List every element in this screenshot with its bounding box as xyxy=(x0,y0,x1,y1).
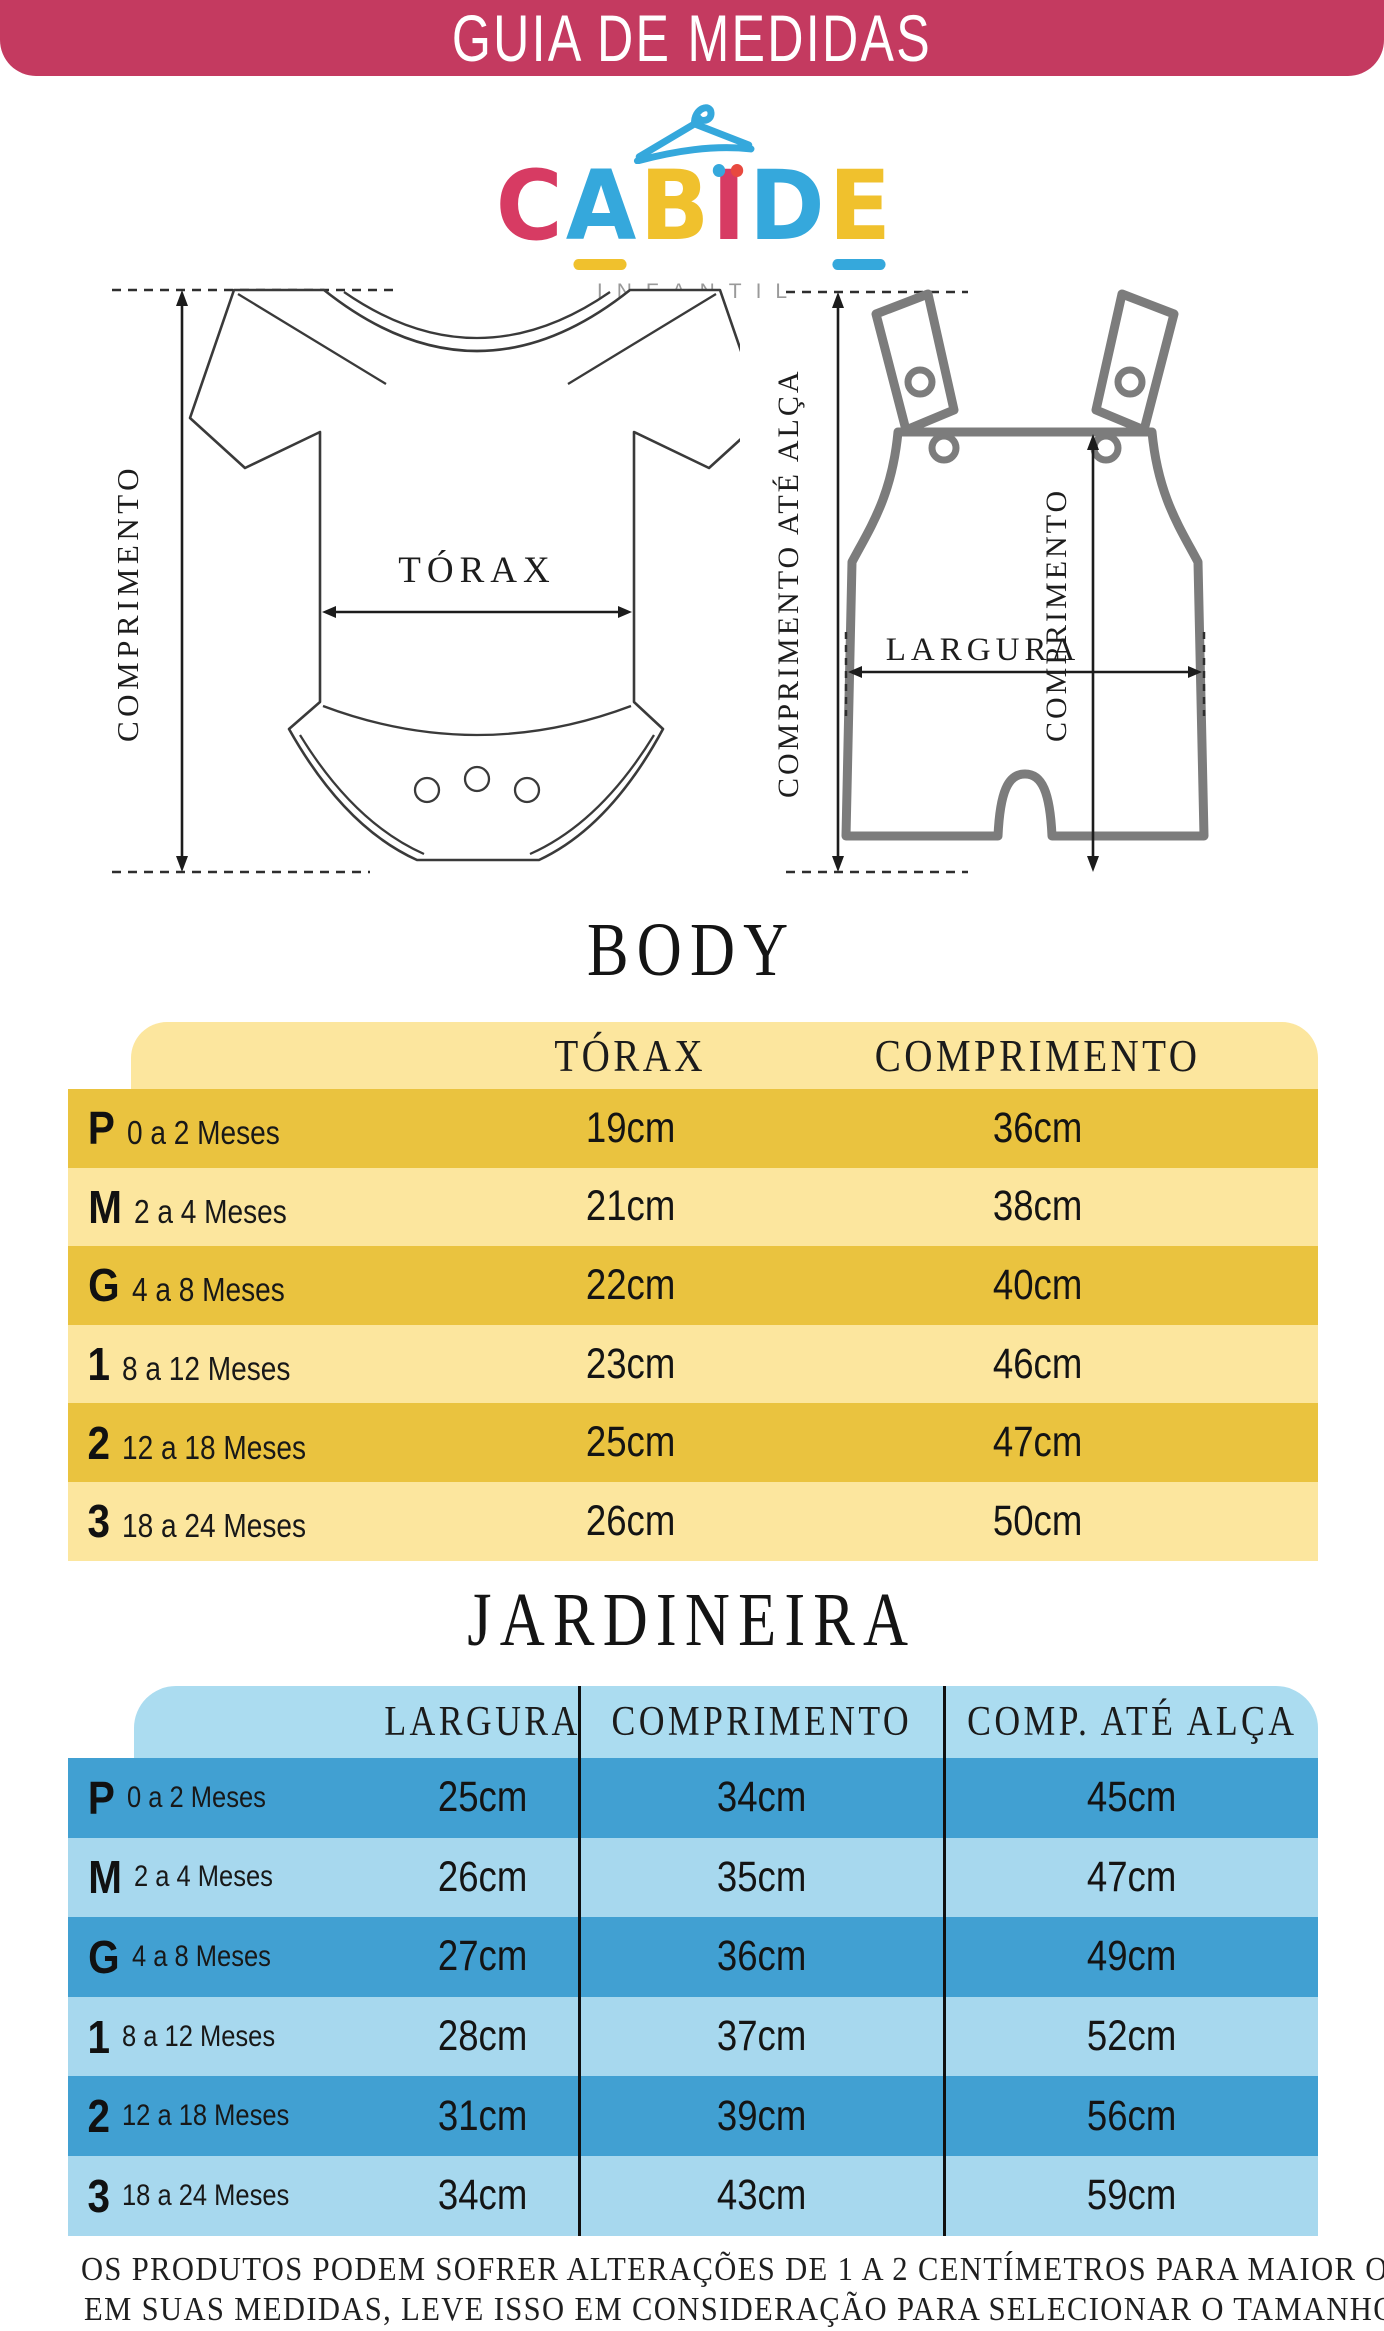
age-range: 0 a 2 Meses xyxy=(127,1114,280,1152)
comprimento-value: 34cm xyxy=(578,1758,943,1838)
age-range: 18 a 24 Meses xyxy=(122,1507,306,1545)
letter-underline xyxy=(832,259,885,270)
size-label: 3 xyxy=(88,2169,111,2223)
age-range: 4 a 8 Meses xyxy=(132,1940,271,1974)
torax-value: 19cm xyxy=(468,1104,793,1153)
brand-letter: D xyxy=(748,158,824,270)
age-range: 18 a 24 Meses xyxy=(122,2179,289,2213)
comprimento-value: 47cm xyxy=(793,1418,1318,1467)
jardineira-length-label: COMPRIMENTO xyxy=(1040,488,1073,742)
disclaimer-line-1: OS PRODUTOS PODEM SOFRER ALTERAÇÕES DE 1… xyxy=(81,2250,1384,2290)
age-range: 8 a 12 Meses xyxy=(122,2020,275,2054)
table-row: 318 a 24 Meses 26cm 50cm xyxy=(68,1482,1318,1561)
torax-value: 23cm xyxy=(468,1340,793,1389)
size-label: P xyxy=(88,1771,115,1825)
size-label: 1 xyxy=(88,1337,111,1391)
size-label: 2 xyxy=(88,1416,111,1470)
age-range: 2 a 4 Meses xyxy=(134,1860,273,1894)
size-label: M xyxy=(88,1850,122,1904)
age-range: 12 a 18 Meses xyxy=(122,2099,289,2133)
largura-value: 28cm xyxy=(387,1997,578,2077)
largura-value: 31cm xyxy=(387,2076,578,2156)
brand-letter: E xyxy=(828,158,890,270)
size-label: G xyxy=(88,1258,119,1312)
size-label: 3 xyxy=(88,1494,111,1548)
comprimento-value: 39cm xyxy=(578,2076,943,2156)
body-size-table: TÓRAX COMPRIMENTO P0 a 2 Meses 19cm 36cm… xyxy=(68,1022,1318,1561)
brand-wordmark: C A B I D E xyxy=(0,158,1384,270)
comp-ate-alca-value: 52cm xyxy=(943,1997,1318,2077)
brand-letter: B xyxy=(639,158,709,270)
letter-underline xyxy=(574,259,627,270)
size-label: G xyxy=(88,1930,119,1984)
largura-value: 25cm xyxy=(387,1758,578,1838)
largura-value: 34cm xyxy=(387,2156,578,2236)
body-table-header: TÓRAX COMPRIMENTO xyxy=(68,1022,1318,1089)
comprimento-value: 36cm xyxy=(578,1917,943,1997)
largura-value: 27cm xyxy=(387,1917,578,1997)
comprimento-value: 50cm xyxy=(793,1497,1318,1546)
torax-value: 26cm xyxy=(468,1497,793,1546)
table-row: M2 a 4 Meses 21cm 38cm xyxy=(68,1168,1318,1247)
torax-value: 22cm xyxy=(468,1261,793,1310)
jardineira-diagram: COMPRIMENTO ATÉ ALÇA COMPRIMENTO LARGURA xyxy=(758,280,1324,892)
diagrams: COMPRIMENTO TÓRAX COMPRIMENTO ATÉ ALÇA xyxy=(0,280,1384,894)
page-title: GUIA DE MEDIDAS xyxy=(452,0,932,76)
comprimento-value: 43cm xyxy=(578,2156,943,2236)
col-header-comp-ate-alca: COMP. ATÉ ALÇA xyxy=(943,1686,1318,1758)
comprimento-value: 40cm xyxy=(793,1261,1318,1310)
jardineira-section-title: JARDINEIRA xyxy=(0,1578,1384,1662)
col-header-comprimento: COMPRIMENTO xyxy=(578,1686,943,1758)
size-label: M xyxy=(88,1180,122,1234)
comprimento-value: 46cm xyxy=(793,1340,1318,1389)
size-label: P xyxy=(88,1101,115,1155)
table-row: G4 a 8 Meses 27cm 36cm 49cm xyxy=(68,1917,1318,1997)
body-diagram: COMPRIMENTO TÓRAX xyxy=(92,280,740,892)
size-label: 1 xyxy=(88,2010,111,2064)
brand-letter-i: I xyxy=(711,158,745,270)
body-chest-label: TÓRAX xyxy=(398,549,555,591)
comprimento-value: 36cm xyxy=(793,1104,1318,1153)
brand-letter: A xyxy=(565,158,636,270)
table-row: 212 a 18 Meses 25cm 47cm xyxy=(68,1403,1318,1482)
jardineira-size-table: LARGURA COMPRIMENTO COMP. ATÉ ALÇA P0 a … xyxy=(68,1686,1318,2236)
comp-ate-alca-value: 49cm xyxy=(943,1917,1318,1997)
table-row: 18 a 12 Meses 28cm 37cm 52cm xyxy=(68,1997,1318,2077)
comprimento-value: 38cm xyxy=(793,1182,1318,1231)
comp-ate-alca-value: 45cm xyxy=(943,1758,1318,1838)
i-dot-red xyxy=(731,164,743,177)
comprimento-value: 35cm xyxy=(578,1838,943,1918)
table-row: G4 a 8 Meses 22cm 40cm xyxy=(68,1246,1318,1325)
body-length-label: COMPRIMENTO xyxy=(110,464,145,742)
largura-value: 26cm xyxy=(387,1838,578,1918)
table-row: P0 a 2 Meses 25cm 34cm 45cm xyxy=(68,1758,1318,1838)
torax-value: 21cm xyxy=(468,1182,793,1231)
torax-value: 25cm xyxy=(468,1418,793,1467)
disclaimer-note: OS PRODUTOS PODEM SOFRER ALTERAÇÕES DE 1… xyxy=(0,2250,1384,2330)
age-range: 8 a 12 Meses xyxy=(122,1350,290,1388)
table-row: 212 a 18 Meses 31cm 39cm 56cm xyxy=(68,2076,1318,2156)
comp-ate-alca-value: 59cm xyxy=(943,2156,1318,2236)
title-bar: GUIA DE MEDIDAS xyxy=(0,0,1384,76)
comp-ate-alca-value: 56cm xyxy=(943,2076,1318,2156)
age-range: 0 a 2 Meses xyxy=(127,1781,266,1815)
disclaimer-line-2: EM SUAS MEDIDAS, LEVE ISSO EM CONSIDERAÇ… xyxy=(84,2290,1384,2330)
col-header-torax: TÓRAX xyxy=(468,1029,793,1082)
col-header-comprimento: COMPRIMENTO xyxy=(793,1029,1318,1082)
age-range: 4 a 8 Meses xyxy=(132,1271,285,1309)
comprimento-value: 37cm xyxy=(578,1997,943,2077)
body-section-title: BODY xyxy=(0,908,1384,992)
i-dots xyxy=(713,164,743,177)
table-row: 18 a 12 Meses 23cm 46cm xyxy=(68,1325,1318,1404)
age-range: 12 a 18 Meses xyxy=(122,1429,306,1467)
table-row: 318 a 24 Meses 34cm 43cm 59cm xyxy=(68,2156,1318,2236)
table-row: M2 a 4 Meses 26cm 35cm 47cm xyxy=(68,1838,1318,1918)
brand-letter: C xyxy=(494,158,561,270)
jardineira-strap-length-label: COMPRIMENTO ATÉ ALÇA xyxy=(772,369,805,799)
i-dot-blue xyxy=(713,164,725,177)
size-label: 2 xyxy=(88,2089,111,2143)
jardineira-width-label: LARGURA xyxy=(886,632,1081,668)
comp-ate-alca-value: 47cm xyxy=(943,1838,1318,1918)
jardineira-table-header: LARGURA COMPRIMENTO COMP. ATÉ ALÇA xyxy=(68,1686,1318,1758)
table-row: P0 a 2 Meses 19cm 36cm xyxy=(68,1089,1318,1168)
col-header-largura: LARGURA xyxy=(387,1686,578,1758)
brand-logo: C A B I D E INFANTIL xyxy=(0,92,1384,304)
age-range: 2 a 4 Meses xyxy=(134,1193,287,1231)
